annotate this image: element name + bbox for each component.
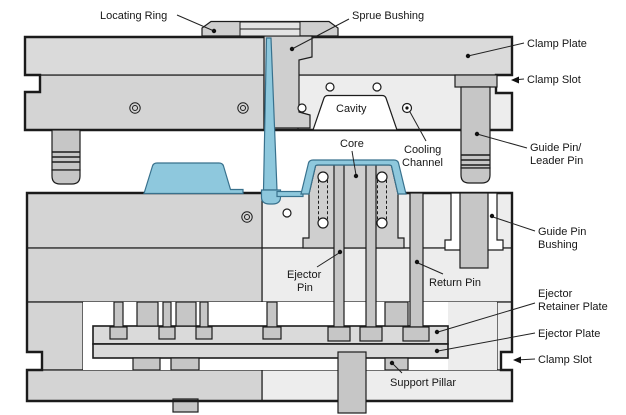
- label-clamp-slot-bottom: Clamp Slot: [538, 354, 592, 366]
- guide-pin-left: [52, 130, 80, 170]
- bottom-clamp-plate-right: [262, 370, 512, 401]
- label-clamp-plate: Clamp Plate: [527, 38, 587, 50]
- guide-pin-right-tip: [461, 168, 490, 183]
- label-ejector-pin-line1: Ejector: [287, 269, 322, 281]
- mold-diagram-canvas: Locating Ring Sprue Bushing Clamp Plate …: [0, 0, 626, 415]
- ejector-pin-head: [110, 327, 127, 339]
- cooling-channel-circle: [298, 104, 306, 112]
- label-guide-pin-bushing-line2: Bushing: [538, 239, 578, 251]
- ejector-pin-head: [159, 327, 175, 339]
- label-locating-ring: Locating Ring: [100, 10, 167, 22]
- ejector-pin-stub: [163, 302, 171, 327]
- ejector-pin-bar: [366, 165, 376, 327]
- label-cooling-line1: Cooling: [404, 144, 441, 156]
- ejector-pin-head: [196, 327, 212, 339]
- guide-pin-right: [461, 87, 490, 168]
- guide-pin-head: [455, 75, 497, 87]
- support-plate-left: [27, 248, 262, 302]
- label-guide-pin-line1: Guide Pin/: [530, 142, 582, 154]
- label-cooling-line2: Channel: [402, 157, 443, 169]
- guide-pin-left-tip: [52, 170, 80, 184]
- label-support-pillar: Support Pillar: [390, 377, 456, 389]
- support-pillar-stub: [176, 302, 196, 326]
- cooling-channel-circle: [326, 83, 334, 91]
- cavity-plate-left: [25, 75, 264, 130]
- support-pillar-stub-labeled: [385, 302, 408, 326]
- ejector-rod: [338, 352, 366, 413]
- label-core: Core: [340, 138, 364, 150]
- cooling-channel-center-dot: [405, 106, 408, 109]
- core-plate-left: [27, 193, 262, 248]
- label-cavity: Cavity: [336, 103, 367, 115]
- runner: [277, 192, 303, 197]
- label-return-pin: Return Pin: [429, 277, 481, 289]
- support-pillar-base: [171, 358, 199, 370]
- cooling-channel-circle: [283, 209, 291, 217]
- ejector-pin-stub: [200, 302, 208, 327]
- label-guide-pin-bushing-line1: Guide Pin: [538, 226, 586, 238]
- cooling-channel-circle: [373, 83, 381, 91]
- ejector-box-interior-right: [448, 302, 497, 370]
- support-pillar-stub: [137, 302, 158, 326]
- sprue-puller-pin: [267, 302, 277, 327]
- label-guide-pin-line2: Leader Pin: [530, 155, 583, 167]
- ejector-pin-stub: [114, 302, 123, 327]
- bottom-clamp-plate-left: [27, 370, 262, 401]
- label-ejector-plate: Ejector Plate: [538, 328, 600, 340]
- label-ejector-retainer-line2: Retainer Plate: [538, 301, 608, 313]
- label-ejector-retainer-line1: Ejector: [538, 288, 573, 300]
- ejector-plate: [93, 344, 448, 358]
- label-sprue-bushing: Sprue Bushing: [352, 10, 424, 22]
- sprue-puller-head: [263, 327, 281, 339]
- ejector-pin-bar: [334, 165, 344, 327]
- mold-diagram-page: Locating Ring Sprue Bushing Clamp Plate …: [0, 0, 626, 415]
- support-pillar-base: [133, 358, 160, 370]
- ejector-pin-head: [328, 327, 350, 341]
- guide-pin-bushing-sleeve: [460, 193, 488, 268]
- ejector-pin-head: [360, 327, 382, 341]
- label-ejector-pin-line2: Pin: [297, 282, 313, 294]
- return-pin-head: [403, 327, 429, 341]
- label-clamp-slot-top: Clamp Slot: [527, 74, 581, 86]
